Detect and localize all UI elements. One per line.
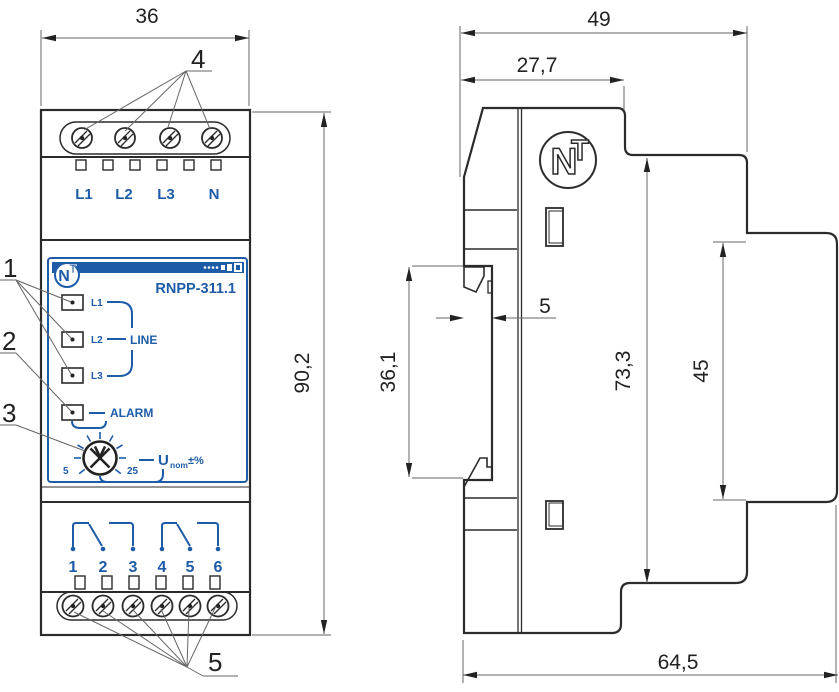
terminal-label-l3: L3 xyxy=(157,186,175,203)
terminal-number-1: 1 xyxy=(69,559,78,576)
svg-text:49: 49 xyxy=(587,8,610,31)
led-label-l2: L2 xyxy=(91,335,103,346)
screw-terminal-bottom xyxy=(123,596,144,617)
drawing-canvas: 36 xyxy=(0,0,839,692)
dim-width-36: 36 xyxy=(41,5,249,106)
unom-label: U xyxy=(158,452,169,469)
dim-depth-overall-645: 64,5 xyxy=(463,505,838,683)
screw-terminal-bottom xyxy=(93,596,114,617)
bottom-terminal-block xyxy=(57,592,237,620)
side-logo-letter-t: T xyxy=(571,135,589,167)
face-header-bar xyxy=(52,262,244,273)
nt-logo-embossed-icon: N T xyxy=(540,132,596,188)
dim-depth-277: 27,7 xyxy=(461,54,624,110)
screw-terminal-top xyxy=(160,128,180,148)
vent-slot-bottom xyxy=(546,501,563,529)
svg-text:5: 5 xyxy=(208,647,222,677)
svg-text:73,3: 73,3 xyxy=(612,351,635,392)
terminal-label-n: N xyxy=(209,186,220,203)
alarm-label: ALARM xyxy=(110,406,153,420)
terminal-number-6: 6 xyxy=(214,559,223,576)
dim-body-height-733: 73,3 xyxy=(612,158,650,583)
led-label-l1: L1 xyxy=(91,298,103,309)
svg-text:1: 1 xyxy=(3,253,17,283)
terminal-number-5: 5 xyxy=(186,559,195,576)
unom-suffix: ±% xyxy=(188,455,204,467)
nt-logo-icon: N T xyxy=(55,262,79,287)
din-clip-top xyxy=(464,267,484,292)
dim-recess-height-361: 36,1 xyxy=(377,266,463,478)
wire-holes-bottom xyxy=(75,576,220,589)
screw-terminal-bottom xyxy=(63,596,84,617)
svg-text:36,1: 36,1 xyxy=(377,352,400,393)
knob-scale-min: 5 xyxy=(63,466,69,477)
svg-text:5: 5 xyxy=(539,295,551,318)
contact-terminal-dots xyxy=(71,547,221,552)
svg-text:27,7: 27,7 xyxy=(517,54,558,77)
din-clip-bottom xyxy=(464,458,492,487)
din-recess-notch xyxy=(488,281,492,293)
unom-sub: nom xyxy=(170,460,188,470)
terminal-number-4: 4 xyxy=(158,559,167,576)
screw-terminal-bottom xyxy=(152,596,173,617)
svg-text:4: 4 xyxy=(191,44,205,74)
dim-recess-depth-5: 5 xyxy=(436,295,556,321)
screw-terminal-bottom xyxy=(180,596,201,617)
dimensional-drawing: 36 xyxy=(0,0,839,692)
terminal-label-l2: L2 xyxy=(115,186,133,203)
led-label-l3: L3 xyxy=(91,371,103,382)
side-body-outline xyxy=(464,108,837,633)
logo-letter-n: N xyxy=(58,268,70,285)
dim-panel-height-45: 45 xyxy=(690,242,746,500)
terminal-label-l1: L1 xyxy=(75,186,93,203)
screw-terminal-top xyxy=(202,128,222,148)
callout-bottom-screws: 5 xyxy=(74,606,238,677)
terminal-number-3: 3 xyxy=(129,559,138,576)
top-terminal-block: L1 L2 L3 N xyxy=(60,122,230,203)
svg-text:2: 2 xyxy=(2,326,16,356)
dim-depth-49: 49 xyxy=(460,8,747,177)
logo-letter-t: T xyxy=(69,262,77,276)
model-number: RNPP-311.1 xyxy=(155,281,236,297)
line-group-label: LINE xyxy=(130,333,157,347)
vent-slot-top xyxy=(546,208,563,246)
svg-text:3: 3 xyxy=(2,398,16,428)
front-view: 36 xyxy=(0,5,331,677)
dim-height-value: 90,2 xyxy=(291,353,314,394)
relay-contact-diagram: 1 2 3 4 5 6 xyxy=(69,523,223,576)
dim-width-value: 36 xyxy=(135,5,158,28)
callout-top-screws: 4 xyxy=(84,44,212,131)
screw-terminal-bottom xyxy=(208,596,229,617)
side-view: N T 49 27,7 xyxy=(377,8,838,683)
wire-holes-top xyxy=(76,160,221,170)
svg-text:64,5: 64,5 xyxy=(658,651,699,674)
screw-terminal-top xyxy=(72,128,92,148)
terminal-number-2: 2 xyxy=(99,559,108,576)
svg-text:45: 45 xyxy=(690,359,713,382)
knob-scale-max: 25 xyxy=(127,466,139,477)
dim-height-902: 90,2 xyxy=(252,112,331,635)
